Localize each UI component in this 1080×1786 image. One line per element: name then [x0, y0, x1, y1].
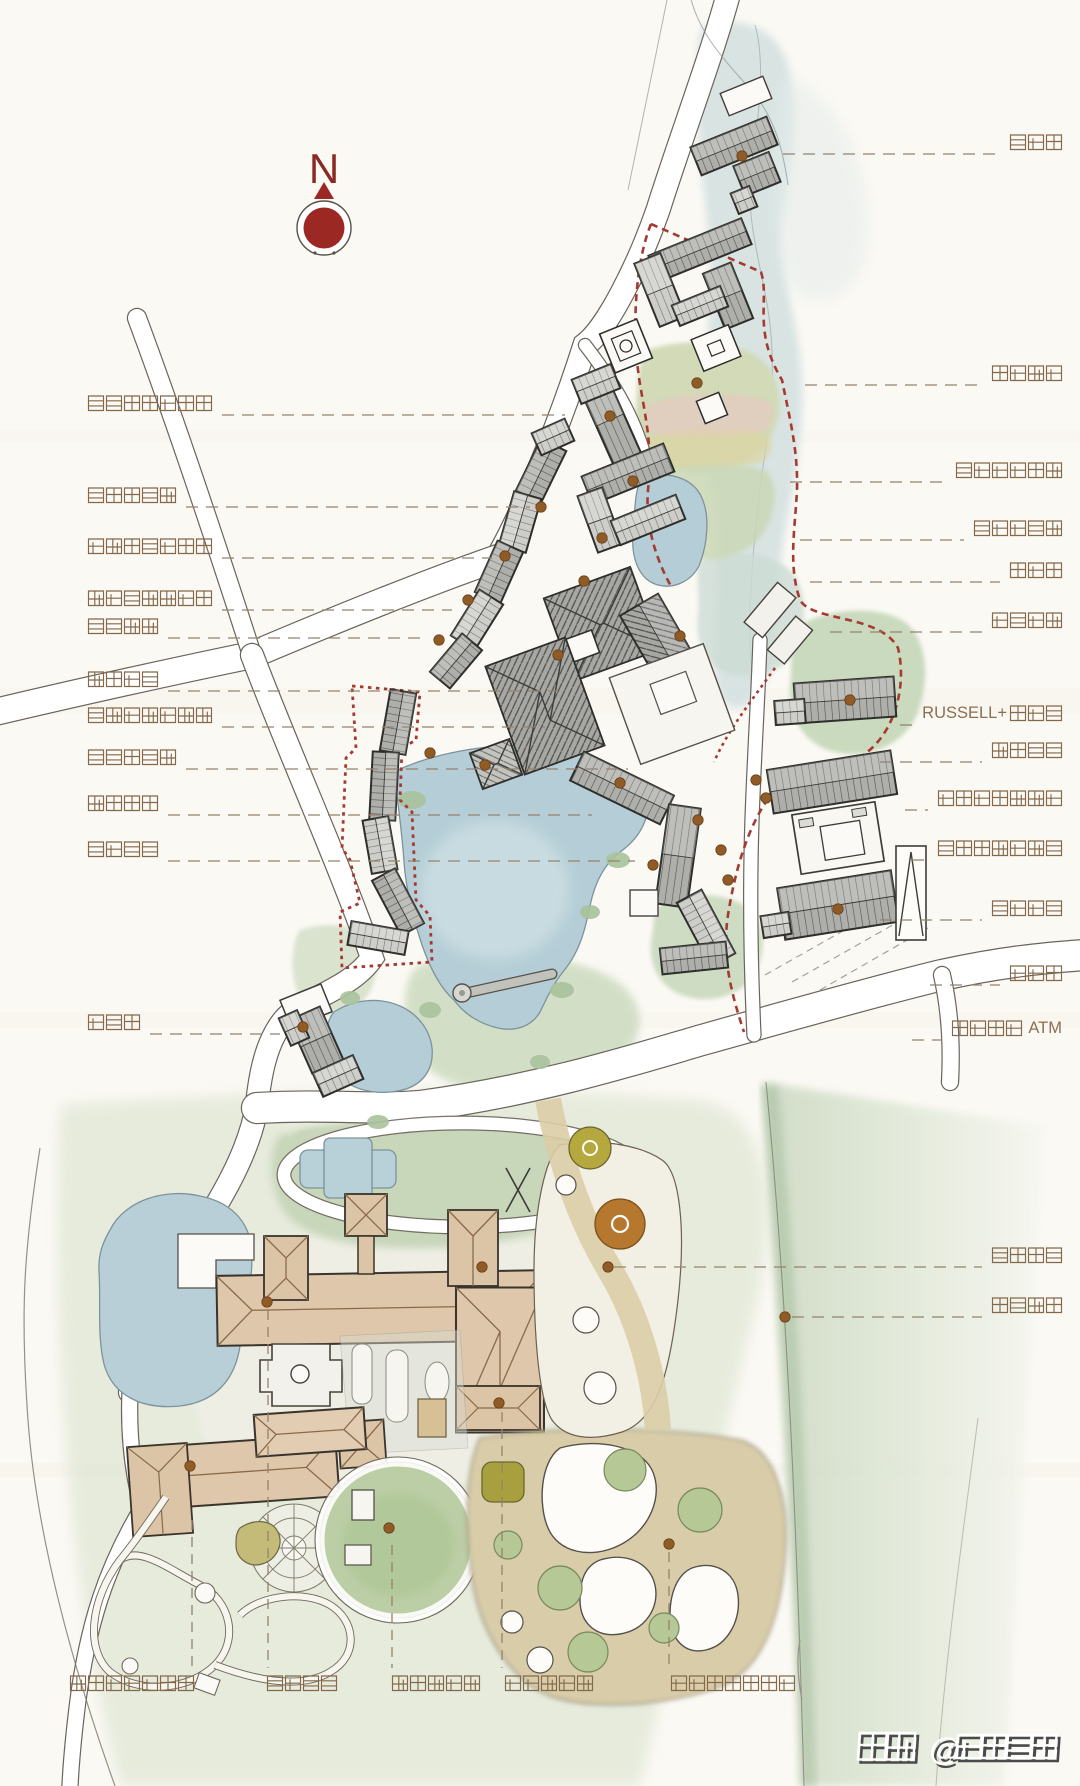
svg-text:RUSSELL+: RUSSELL+ [922, 704, 1007, 722]
svg-text:ATM: ATM [1028, 1019, 1062, 1037]
svg-text:N: N [309, 145, 339, 192]
